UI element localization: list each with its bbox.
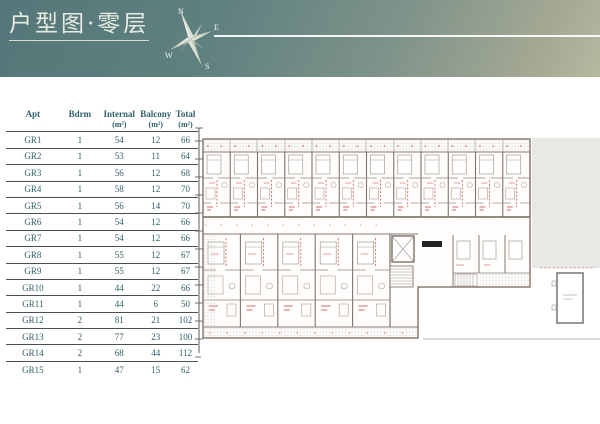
cell-bdrm: 1 (60, 148, 100, 164)
cell-internal: 54 (100, 132, 138, 148)
cell-balcony: 15 (138, 361, 173, 377)
cell-internal: 56 (100, 197, 138, 213)
table-row: GR101442266 (6, 279, 198, 295)
column-header-bdrm: Bdrm (60, 106, 100, 132)
balcony-hatch-bottom (203, 327, 418, 338)
cell-balcony: 12 (138, 230, 173, 246)
table-row: GR11541266 (6, 132, 198, 148)
cell-balcony: 12 (138, 181, 173, 197)
cell-balcony: 22 (138, 279, 173, 295)
compass-star (170, 10, 212, 66)
table-row: GR81551267 (6, 247, 198, 263)
cell-bdrm: 1 (60, 279, 100, 295)
cell-bdrm: 1 (60, 165, 100, 181)
table-row: GR1327723100 (6, 329, 198, 345)
slide: 户型图·零层 (0, 0, 600, 424)
cell-balcony: 12 (138, 263, 173, 279)
table-row: GR61541266 (6, 214, 198, 230)
cell-apt: GR14 (6, 345, 60, 361)
compass-east-label: E (214, 23, 219, 32)
cell-apt: GR10 (6, 279, 60, 295)
page-title: 户型图·零层 (9, 12, 149, 41)
apartment-table-panel: Apt Bdrm Internal(m²) Balcony(m²) Total(… (6, 106, 198, 377)
cell-apt: GR1 (6, 132, 60, 148)
table-row: GR31561268 (6, 165, 198, 181)
elevator-shaft (392, 236, 414, 262)
cell-internal: 54 (100, 214, 138, 230)
column-header-balcony: Balcony(m²) (138, 106, 173, 132)
cell-bdrm: 1 (60, 214, 100, 230)
cell-apt: GR3 (6, 165, 60, 181)
cell-apt: GR5 (6, 197, 60, 213)
cell-bdrm: 1 (60, 247, 100, 263)
cell-bdrm: 2 (60, 312, 100, 328)
cell-internal: 54 (100, 230, 138, 246)
cell-bdrm: 1 (60, 197, 100, 213)
cell-apt: GR2 (6, 148, 60, 164)
cell-bdrm: 1 (60, 132, 100, 148)
entrance-marker (422, 241, 442, 247)
boundary-ruler (195, 128, 203, 357)
table-row: GR1228121102 (6, 312, 198, 328)
cell-internal: 44 (100, 279, 138, 295)
table-row: GR151471562 (6, 361, 198, 377)
cell-apt: GR7 (6, 230, 60, 246)
cell-internal: 81 (100, 312, 138, 328)
annex-building (552, 273, 583, 323)
cell-balcony: 12 (138, 247, 173, 263)
cell-apt: GR6 (6, 214, 60, 230)
cell-internal: 77 (100, 329, 138, 345)
cell-balcony: 12 (138, 132, 173, 148)
cell-internal: 56 (100, 165, 138, 181)
header-rule-line (214, 35, 600, 37)
column-header-internal: Internal(m²) (100, 106, 138, 132)
cell-internal: 55 (100, 247, 138, 263)
cell-internal: 58 (100, 181, 138, 197)
cell-apt: GR4 (6, 181, 60, 197)
cell-bdrm: 1 (60, 361, 100, 377)
cell-balcony: 21 (138, 312, 173, 328)
cell-balcony: 23 (138, 329, 173, 345)
cell-apt: GR13 (6, 329, 60, 345)
cell-bdrm: 1 (60, 296, 100, 312)
cell-internal: 47 (100, 361, 138, 377)
balcony-hatch-top (203, 139, 530, 152)
column-header-apt: Apt (6, 106, 60, 132)
cell-balcony: 44 (138, 345, 173, 361)
exterior-stair (455, 274, 477, 286)
table-header-row: Apt Bdrm Internal(m²) Balcony(m²) Total(… (6, 106, 198, 132)
table-row: GR51561470 (6, 197, 198, 213)
cell-apt: GR15 (6, 361, 60, 377)
cell-apt: GR11 (6, 296, 60, 312)
cell-balcony: 12 (138, 165, 173, 181)
cell-balcony: 12 (138, 214, 173, 230)
table-row: GR11144650 (6, 296, 198, 312)
staircase (390, 266, 413, 287)
compass-south-label: S (205, 62, 209, 71)
cell-internal: 53 (100, 148, 138, 164)
site-area (532, 138, 600, 268)
floor-plan-drawing (195, 95, 600, 420)
compass-west-label: W (165, 51, 173, 60)
apartment-table: Apt Bdrm Internal(m²) Balcony(m²) Total(… (6, 106, 198, 377)
table-row: GR41581270 (6, 181, 198, 197)
cell-bdrm: 1 (60, 263, 100, 279)
cell-bdrm: 2 (60, 345, 100, 361)
cell-balcony: 11 (138, 148, 173, 164)
table-row: GR21531164 (6, 148, 198, 164)
cell-apt: GR12 (6, 312, 60, 328)
compass-north-label: N (178, 7, 184, 16)
table-row: GR91551267 (6, 263, 198, 279)
cell-bdrm: 2 (60, 329, 100, 345)
compass-rose-icon: N E S W (150, 2, 228, 76)
cell-internal: 68 (100, 345, 138, 361)
cell-bdrm: 1 (60, 230, 100, 246)
cell-apt: GR9 (6, 263, 60, 279)
cell-apt: GR8 (6, 247, 60, 263)
cell-balcony: 14 (138, 197, 173, 213)
header-banner: 户型图·零层 (0, 0, 600, 77)
table-row: GR71541266 (6, 230, 198, 246)
cell-bdrm: 1 (60, 181, 100, 197)
cell-internal: 55 (100, 263, 138, 279)
cell-internal: 44 (100, 296, 138, 312)
cell-balcony: 6 (138, 296, 173, 312)
table-row: GR1426844112 (6, 345, 198, 361)
